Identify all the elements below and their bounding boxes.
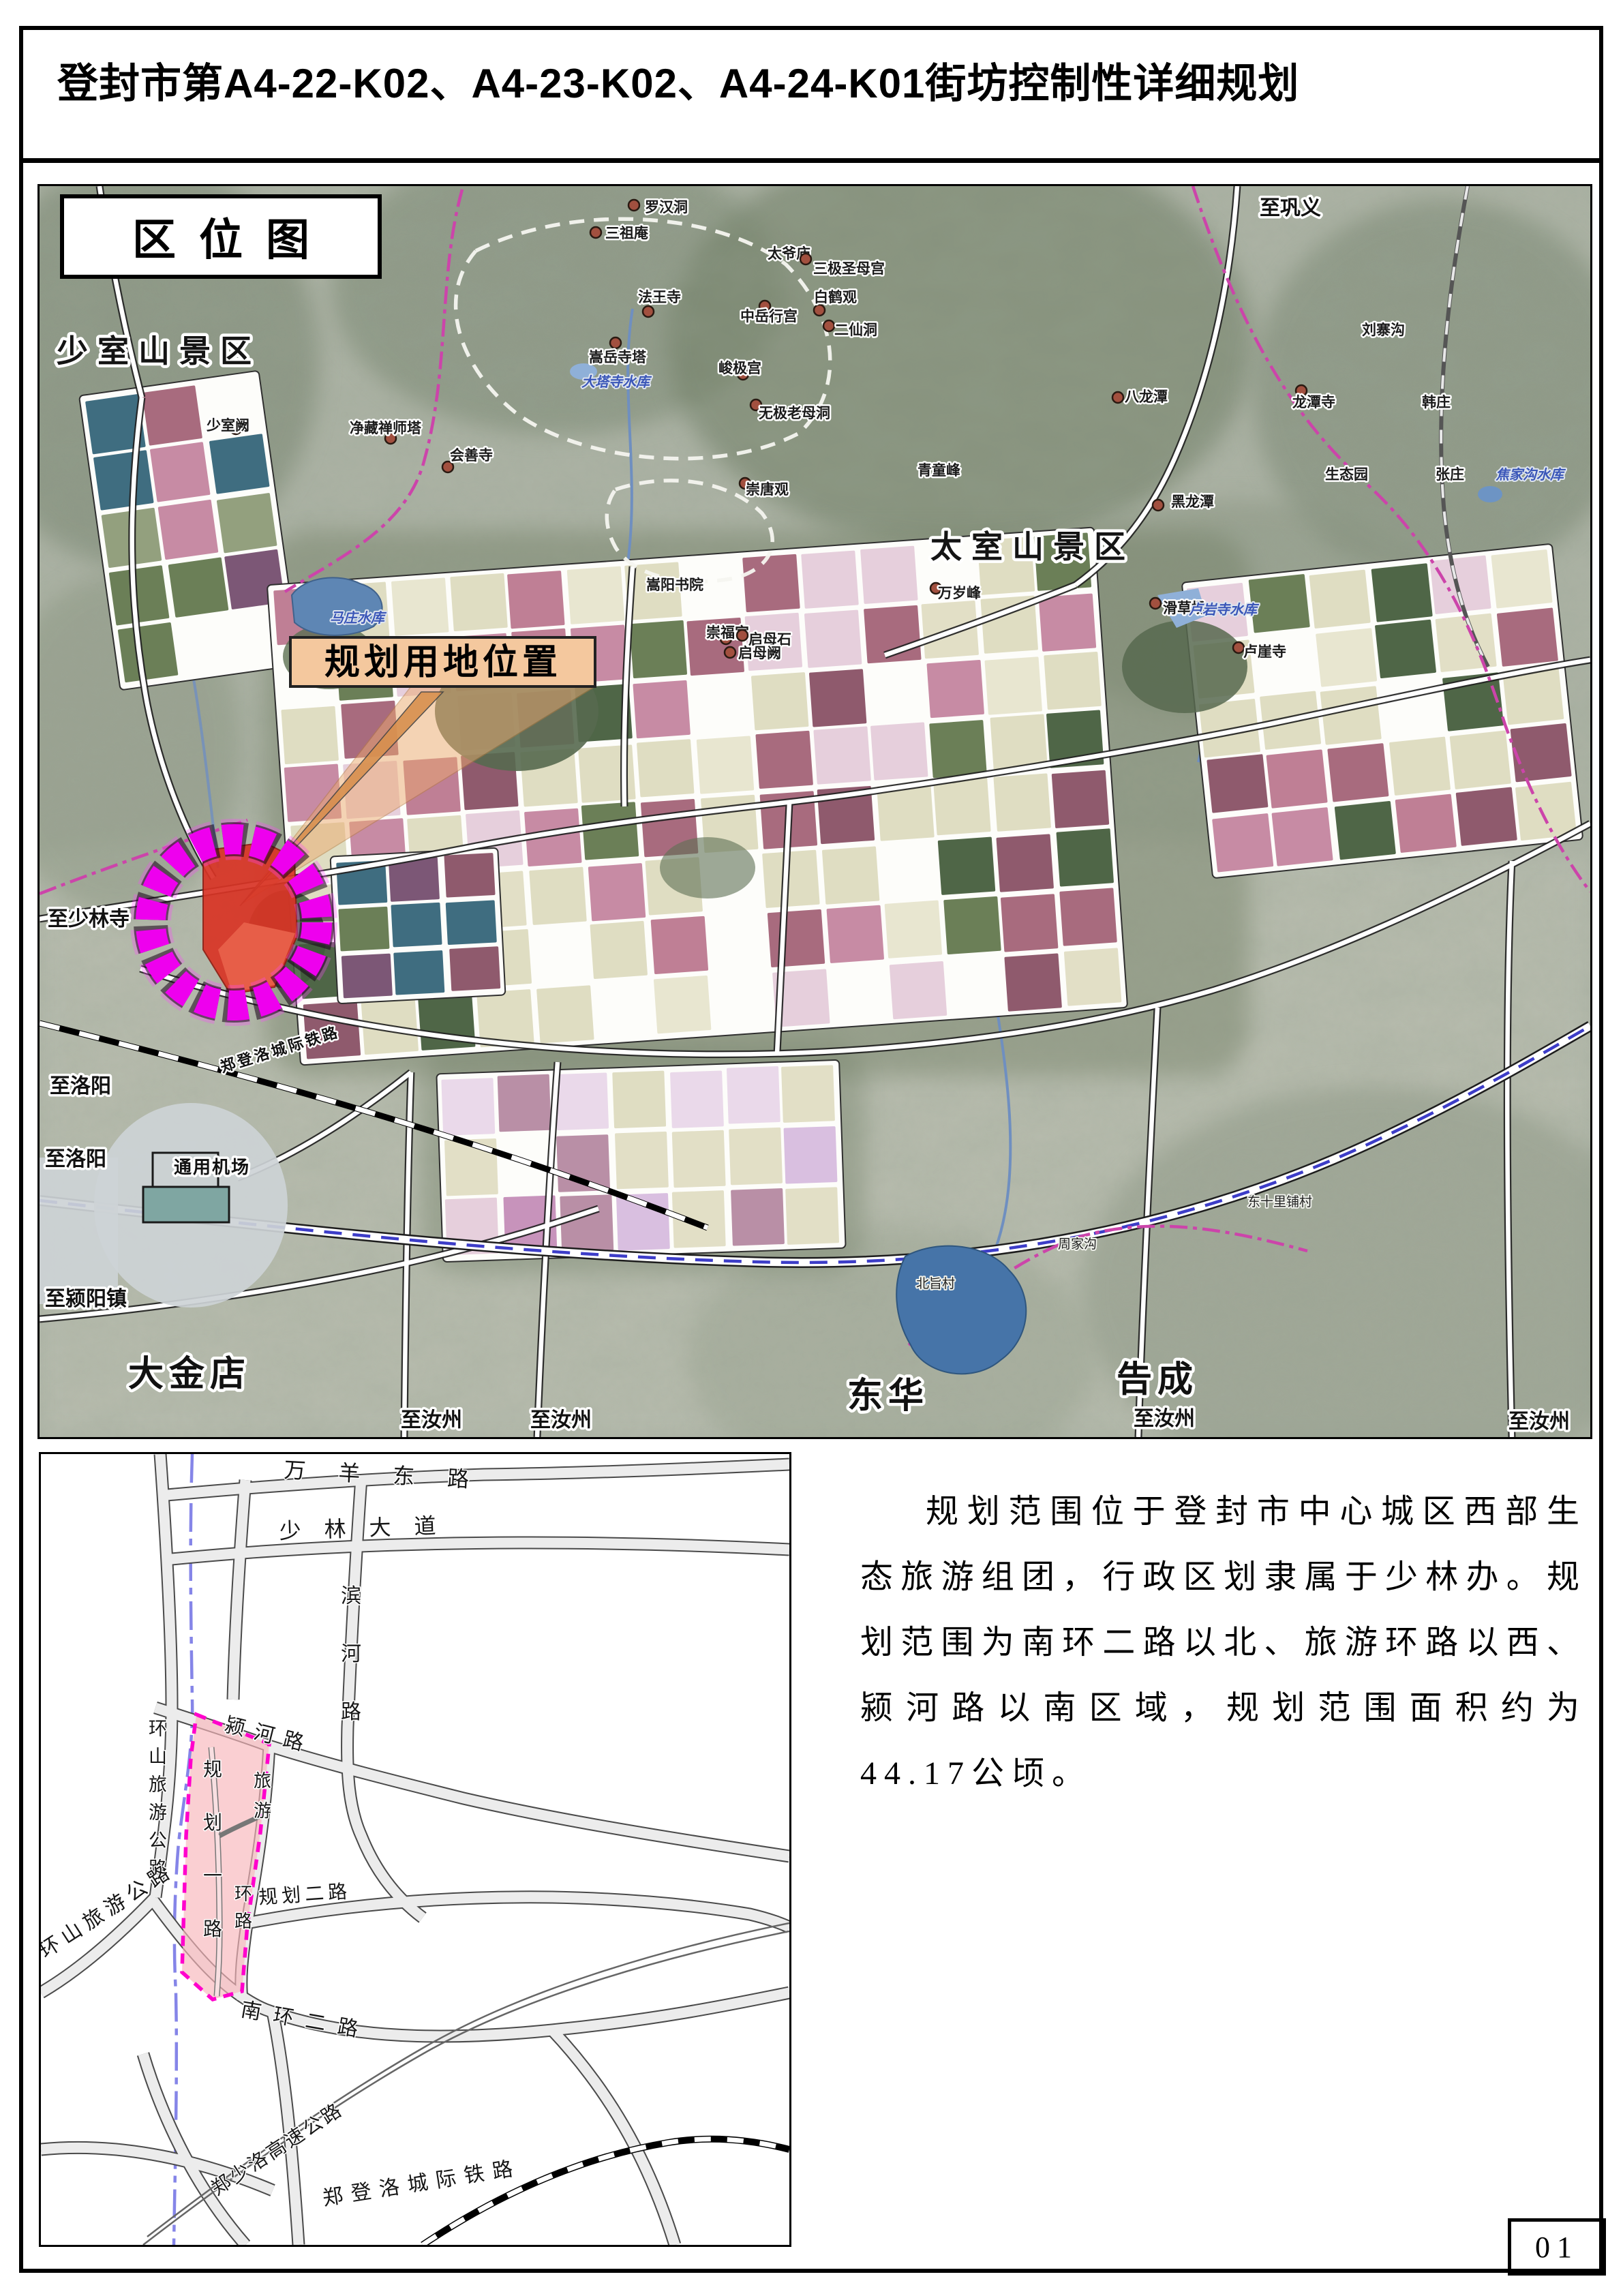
- map-label: 太室山景区: [930, 529, 1135, 564]
- city-block: [822, 846, 880, 904]
- city-block: [450, 573, 508, 631]
- poi-dot: [800, 254, 811, 265]
- map-label: 至少林寺: [48, 908, 130, 931]
- map-label: 至洛阳: [45, 1148, 106, 1170]
- city-block: [1371, 563, 1433, 622]
- city-block: [1327, 743, 1389, 802]
- map-label: 周家沟: [1058, 1237, 1097, 1252]
- city-block: [926, 660, 984, 718]
- city-block: [781, 1065, 835, 1123]
- map-label: 刘寨沟: [1362, 322, 1405, 338]
- map-label: 告成: [1117, 1360, 1198, 1400]
- city-block: [393, 950, 444, 995]
- map-label: 少室阙: [206, 417, 249, 434]
- city-block: [1389, 736, 1451, 796]
- inset-map-canvas[interactable]: 万羊东路少林大道滨河路颍河路环山旅游公路环山旅游公路规划一路旅游环路规划二路南环…: [41, 1454, 789, 2245]
- city-block: [633, 680, 691, 738]
- poi-dot: [628, 200, 639, 211]
- city-block: [590, 921, 648, 979]
- city-block: [929, 720, 987, 778]
- city-block: [742, 554, 800, 612]
- city-block: [1266, 749, 1327, 809]
- map-label: 至巩义: [1260, 197, 1321, 220]
- city-block: [391, 903, 442, 948]
- city-block: [444, 853, 495, 898]
- city-block: [529, 867, 587, 925]
- city-block: [1395, 794, 1457, 854]
- city-block: [581, 802, 639, 860]
- city-block: [672, 1130, 726, 1188]
- map-label: 通用机场: [174, 1157, 250, 1177]
- map-label: 至汝州: [530, 1409, 592, 1432]
- map-label: 焦家沟水库: [1496, 467, 1566, 483]
- city-block: [507, 571, 565, 629]
- city-block: [938, 837, 996, 895]
- city-block: [809, 669, 867, 727]
- page-number-box: 01: [1508, 2218, 1606, 2276]
- callout-label: 规划用地位置: [324, 643, 562, 682]
- map-label: 至洛阳: [50, 1075, 111, 1098]
- city-block: [1001, 894, 1059, 952]
- map-label: 龙潭寺: [1292, 394, 1335, 410]
- location-map[interactable]: 区位图: [37, 184, 1592, 1439]
- city-block: [826, 905, 884, 963]
- city-block: [168, 557, 229, 618]
- city-block: [93, 450, 154, 511]
- title-separator: [19, 158, 1603, 163]
- map-label: 法王寺: [638, 289, 681, 305]
- map-label: 东华: [847, 1376, 929, 1416]
- city-block: [142, 385, 202, 446]
- map-label: 韩庄: [1422, 394, 1451, 410]
- city-block: [1212, 813, 1273, 873]
- city-block: [1320, 686, 1382, 745]
- map-label: 净藏禅师塔: [350, 420, 422, 436]
- poi-dot: [1150, 598, 1161, 609]
- city-block: [1491, 549, 1552, 609]
- city-block: [933, 777, 991, 835]
- city-block: [1316, 628, 1377, 687]
- city-block: [342, 954, 393, 999]
- map-label: 张庄: [1436, 466, 1464, 483]
- callout: 规划用地位置: [290, 637, 595, 686]
- map-label: 马庄水库: [330, 610, 387, 626]
- page-title: 登封市第A4-22-K02、A4-23-K02、A4-24-K01街坊控制性详细…: [57, 50, 1299, 110]
- city-block-region: [436, 1060, 845, 1262]
- poi-dot: [610, 337, 621, 348]
- city-block: [993, 773, 1051, 831]
- city-block: [109, 565, 170, 626]
- map-label: 会善寺: [450, 447, 493, 464]
- document-page: 登封市第A4-22-K02、A4-23-K02、A4-24-K01街坊控制性详细…: [0, 0, 1623, 2296]
- city-block: [670, 1070, 724, 1128]
- description-block: 规划范围位于登封市中心城区西部生态旅游组团，行政区划隶属于少林办。规划范围为南环…: [860, 1479, 1587, 1807]
- poi-dot: [590, 227, 601, 238]
- city-block-region: [1182, 544, 1583, 879]
- city-block: [813, 726, 871, 784]
- map-label: 黑龙潭: [1171, 494, 1214, 510]
- city-block: [731, 1188, 785, 1246]
- city-block: [804, 609, 862, 667]
- city-block: [762, 850, 820, 908]
- map-label: 青童峰: [917, 462, 960, 479]
- city-block: [630, 620, 688, 678]
- map-label: 东十里铺村: [1247, 1194, 1312, 1209]
- city-block: [1335, 801, 1396, 860]
- map-label: 启母阙: [738, 645, 781, 661]
- city-block: [1249, 574, 1310, 633]
- city-block: [885, 901, 943, 958]
- city-block: [441, 1078, 495, 1136]
- city-block: [446, 900, 497, 945]
- map-label: 生态园: [1325, 466, 1368, 483]
- city-block: [1510, 723, 1571, 783]
- map-label: 大塔寺水库: [581, 374, 652, 390]
- city-block: [1056, 828, 1114, 886]
- city-block: [1059, 888, 1117, 946]
- map-frame-label: 区位图: [109, 205, 333, 268]
- map-label: 峻极宫: [718, 360, 761, 376]
- poi-dot: [725, 647, 735, 658]
- city-block: [209, 434, 270, 494]
- map-label: 八龙潭: [1125, 389, 1168, 405]
- city-block: [1271, 807, 1333, 866]
- map-label: 至汝州: [1134, 1408, 1195, 1430]
- poi-dot: [643, 306, 654, 317]
- city-block: [391, 577, 449, 635]
- city-block: [1052, 770, 1110, 828]
- inset-map[interactable]: 万羊东路少林大道滨河路颍河路环山旅游公路环山旅游公路规划一路旅游环路规划二路南环…: [39, 1452, 791, 2247]
- city-block: [1004, 953, 1062, 1011]
- poi-dot: [1233, 642, 1244, 653]
- map-label: 至汝州: [401, 1409, 462, 1432]
- city-block: [1309, 570, 1371, 629]
- city-block: [729, 1128, 783, 1185]
- location-map-canvas[interactable]: 规划用地位置 郑登洛城际铁路罗汉洞三祖庵法王寺嵩岳寺塔太爷庙三极圣母宫白鹤观中岳…: [40, 186, 1590, 1437]
- poi-dot: [1153, 500, 1164, 511]
- map-label: 北旨村: [916, 1276, 955, 1291]
- map-label: 白鹤观: [814, 289, 857, 305]
- city-block: [615, 1132, 669, 1190]
- map-label: 嵩岳寺塔: [589, 349, 647, 365]
- city-block: [281, 706, 339, 764]
- city-block: [560, 1194, 613, 1252]
- city-block: [150, 442, 211, 502]
- poi-dot: [823, 320, 834, 331]
- city-block: [1064, 948, 1122, 1006]
- page-number: 01: [1535, 2230, 1579, 2265]
- city-block: [870, 722, 928, 780]
- city-block: [449, 946, 500, 991]
- map-label: 少室山景区: [57, 333, 261, 369]
- poi-dot: [1112, 392, 1123, 403]
- city-block: [651, 916, 709, 974]
- map-label: 罗汉洞: [645, 200, 688, 215]
- map-label: 万岁峰: [937, 585, 981, 601]
- city-block: [996, 834, 1054, 892]
- city-block: [984, 656, 1042, 714]
- map-label: 三极圣母宫: [813, 260, 885, 277]
- city-block: [118, 622, 179, 683]
- city-block: [498, 1074, 551, 1132]
- map-label: 三祖庵: [605, 225, 649, 241]
- city-block: [588, 863, 646, 921]
- city-block: [567, 567, 625, 624]
- city-block: [555, 1072, 609, 1130]
- city-block: [1039, 593, 1097, 651]
- map-label: 中岳行宫: [740, 308, 798, 324]
- city-block: [536, 985, 594, 1043]
- map-label: 至汝州: [1508, 1410, 1570, 1433]
- map-label: 崇唐观: [746, 481, 789, 498]
- city-block: [217, 493, 277, 554]
- city-block: [637, 739, 695, 797]
- city-block: [697, 736, 755, 794]
- map-label: 卢岩寺水库: [1189, 602, 1260, 618]
- city-block: [751, 672, 809, 730]
- city-block: [338, 907, 389, 952]
- map-label: 无极老母洞: [759, 406, 830, 421]
- city-block: [1207, 754, 1268, 813]
- map-label: 滨河路: [341, 1585, 361, 1723]
- city-block: [1044, 652, 1102, 710]
- city-block: [785, 1187, 839, 1245]
- city-block: [1375, 620, 1436, 679]
- map-label: 卢崖寺: [1243, 644, 1286, 660]
- city-block: [755, 731, 813, 789]
- city-block: [943, 896, 1001, 954]
- city-block: [784, 1126, 838, 1184]
- map-label: 大金店: [128, 1355, 251, 1394]
- city-block: [158, 500, 219, 560]
- city-block: [801, 550, 859, 608]
- city-block: [612, 1071, 666, 1129]
- map-label: 至颍阳镇: [45, 1288, 127, 1310]
- poi-dot: [814, 305, 825, 316]
- city-block: [654, 976, 712, 1033]
- city-block: [860, 546, 918, 604]
- poi-dot: [737, 630, 748, 641]
- city-block: [1497, 607, 1558, 667]
- city-block: [1456, 787, 1517, 846]
- city-block: [890, 961, 947, 1019]
- city-block: [768, 909, 825, 967]
- city-block: [727, 1066, 780, 1124]
- description-text: 规划范围位于登封市中心城区西部生态旅游组团，行政区划隶属于少林办。规划范围为南环…: [860, 1479, 1587, 1807]
- map-label: 嵩阳书院: [646, 577, 703, 593]
- airport-runway: [143, 1187, 229, 1222]
- map-frame-label-box: 区位图: [60, 194, 382, 279]
- city-block: [1450, 730, 1511, 789]
- map-label: 二仙洞: [834, 322, 877, 338]
